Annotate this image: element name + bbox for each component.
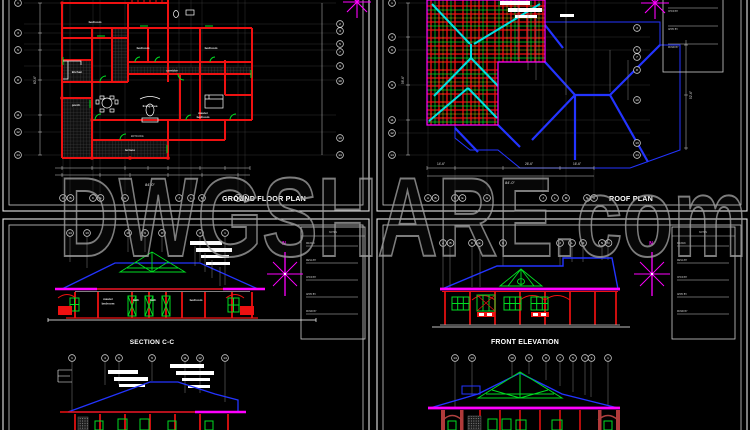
grid-bubble-label: 3 <box>636 26 638 30</box>
grid-bubble-label: 5 <box>339 42 341 46</box>
roof-step <box>462 386 480 394</box>
room-label: ENTRANCE <box>131 135 144 138</box>
sill-blocks <box>477 312 549 317</box>
grid-bubble-label: 9 <box>528 356 530 360</box>
grid-bubble-label: 12 <box>390 131 394 135</box>
room-label: bedroom <box>89 20 102 24</box>
section-labels: master bedroom bath bath bedroom <box>102 297 203 306</box>
windows <box>452 295 548 311</box>
bubble-leaders <box>455 362 608 408</box>
room-label: bedroom <box>137 46 150 50</box>
roof <box>430 373 618 408</box>
label: bath <box>150 298 157 302</box>
grid-bubble-label: 11 <box>390 118 393 122</box>
door-braces <box>477 295 495 311</box>
grid-bubble-label: 10 <box>338 79 342 83</box>
grid-bubble-label: 11 <box>183 356 186 360</box>
stair-hatch <box>113 29 127 81</box>
room-label: living area <box>143 104 158 108</box>
drawing-title: FRONT ELEVATION <box>491 339 559 346</box>
grid-bubble-label: 14 <box>16 153 20 157</box>
label: bedroom <box>190 298 203 302</box>
grid-bubble-row: 1358111214 <box>15 0 22 158</box>
screen-panel <box>468 416 481 430</box>
titleblock-label: RCMD BY <box>668 47 679 49</box>
roof-plan-drawing <box>427 0 680 168</box>
grid-bubble-label: 7 <box>339 50 341 54</box>
grid-bubble-row: 1469111214 <box>69 355 229 362</box>
north-star-icon <box>641 0 669 19</box>
posts <box>480 410 580 430</box>
grid-bubble-label: 5 <box>17 48 19 52</box>
grid-bubble-label: 7 <box>559 356 561 360</box>
grid-bubble-label: 3 <box>584 356 586 360</box>
cut-wall <box>58 306 72 315</box>
grid-bubble-label: 4 <box>104 356 106 360</box>
section-second-drawing <box>58 362 246 430</box>
grid-bubble-label: 5 <box>636 48 638 52</box>
roof-framing <box>427 0 545 125</box>
grid-bubble-label: 9 <box>151 356 153 360</box>
approval-title-block: CHKD BY APPD BY RCMD BY <box>663 0 723 72</box>
notes-label: APPD BY <box>677 293 687 296</box>
label: bedroom <box>102 302 115 306</box>
grid-bubble-label: 1 <box>17 1 19 5</box>
grid-bubble-label: 8 <box>545 356 547 360</box>
grid-bubble-label: 10 <box>510 356 514 360</box>
room-label: corridor <box>166 69 178 73</box>
grid-bubble-label: 9 <box>339 64 341 68</box>
grid-bubble-label: 10 <box>635 98 639 102</box>
roof-surface <box>455 22 680 168</box>
grid-bubble-label: 2 <box>591 356 593 360</box>
grid-bubble-label: 4 <box>391 35 393 39</box>
elevation-second-drawing <box>428 362 620 430</box>
grid-bubble-label: 6 <box>391 48 393 52</box>
room-label: kitchen <box>72 70 83 74</box>
grid-bubble-label: 1 <box>607 356 609 360</box>
room-label: bedroom <box>197 115 210 119</box>
notes-label: RCMD BY <box>677 311 688 313</box>
room-label: terrace <box>125 148 135 152</box>
cad-sheet-screenshot: bedroom bedroom bedroom kitchen corridor… <box>0 0 750 430</box>
grid-bubble-label: 6 <box>118 356 120 360</box>
north-star-icon <box>343 0 371 18</box>
label: bath <box>133 298 140 302</box>
cut-wall <box>240 306 254 315</box>
left-dimension: 60'-6" <box>33 76 37 84</box>
right-dimension: 52'-6" <box>689 91 693 99</box>
grid-bubble-label: 1 <box>391 1 393 5</box>
screen-panel <box>78 417 88 430</box>
grid-bubble-row: 23579101314 <box>337 21 344 159</box>
grid-bubble-label: 13 <box>338 136 342 140</box>
notes-label: APPD BY <box>306 293 316 296</box>
grid-bubble-row: 1469111214 <box>389 0 396 158</box>
grid-bubble-label: 7 <box>636 55 638 59</box>
room-label: porch <box>72 103 81 107</box>
grid-bubble-label: 12 <box>198 356 202 360</box>
grid-bubble-label: 3 <box>17 31 19 35</box>
label: master <box>103 297 114 301</box>
titleblock-label: APPD BY <box>668 28 678 31</box>
grid-bubble-label: 11 <box>16 113 19 117</box>
grid-bubble-label: 13 <box>635 141 639 145</box>
grid-bubble-label: 3 <box>339 29 341 33</box>
drawing-title: SECTION C-C <box>130 339 175 346</box>
corridor-floor-hatch <box>129 67 251 73</box>
grid-bubble-label: 13 <box>470 356 474 360</box>
room-label: bedroom <box>205 46 218 50</box>
porch-floor-hatch <box>63 99 91 157</box>
grid-bubble-label: 8 <box>636 68 638 72</box>
grid-bubble-label: 1 <box>71 356 73 360</box>
left-dimension: 58'-6" <box>401 76 405 84</box>
grid-bubble-label: 14 <box>453 356 457 360</box>
roof-section <box>68 382 238 412</box>
grid-bubble-label: 2 <box>339 22 341 26</box>
notes-label: RCMD BY <box>306 311 317 313</box>
annotation-text-stack <box>108 364 214 388</box>
watermark: DWGSHARE.com <box>59 155 747 280</box>
gable-truss <box>478 372 562 398</box>
titleblock-label: CHKD BY <box>668 11 679 13</box>
windows <box>95 419 213 430</box>
grid-bubble-label: 14 <box>223 356 227 360</box>
drawing-canvas: bedroom bedroom bedroom kitchen corridor… <box>0 0 750 430</box>
grid-bubble-label: 5 <box>572 356 574 360</box>
grid-bubble-label: 8 <box>17 78 19 82</box>
grid-bubble-row: 1413109875321 <box>452 355 612 362</box>
grid-bubble-label: 9 <box>391 83 393 87</box>
grid-bubble-label: 12 <box>16 130 20 134</box>
